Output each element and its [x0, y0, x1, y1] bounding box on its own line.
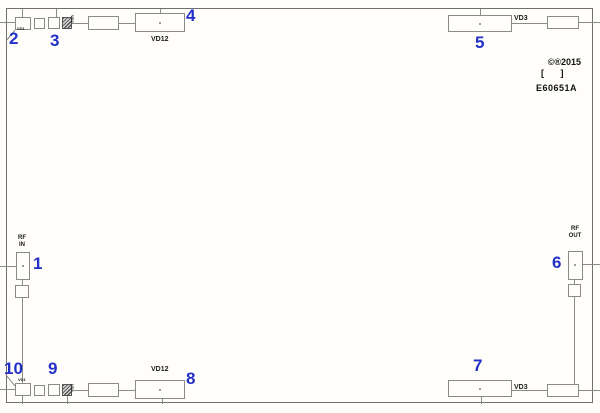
trace-top-left-1: [72, 23, 88, 24]
pad-small-a-bottom: [34, 385, 45, 396]
rf-out-line1: RF: [562, 226, 588, 233]
rf-out-line2: OUT: [562, 233, 588, 240]
component-rect-bottom-left: [88, 383, 119, 397]
component-rect-bottom-right: [547, 384, 579, 397]
rf-in-label: RF IN: [13, 235, 31, 249]
pin-number-10: 10: [4, 360, 23, 377]
pad-9-component: [48, 384, 60, 396]
pin-number-2: 2: [9, 30, 18, 47]
board-outline: [6, 8, 593, 403]
trace-stub-pad2: [22, 9, 23, 17]
rf-in-line2: IN: [13, 242, 31, 249]
pin-number-4: 4: [186, 7, 195, 24]
designator-vd3-top: VD3: [514, 15, 528, 23]
edge-trace-rf-in: [0, 266, 16, 267]
component-rect-top-left: [88, 16, 119, 30]
pcb-assembly-drawing: VD1 2 3 VD2 VD12 4 5 VD3 ©®2015 [ ] E606…: [0, 0, 600, 413]
edge-trace-rf-out: [583, 264, 600, 265]
pad-3-component: [48, 17, 60, 29]
via-dot-pad1: [22, 265, 24, 267]
pin-number-1: 1: [33, 255, 42, 272]
edge-trace-top-left: [0, 22, 16, 23]
pad-small-a-top: [34, 18, 45, 29]
pad-10-component: [15, 383, 31, 396]
via-dot-pad7: [479, 388, 481, 390]
via-dot-pad8: [159, 389, 161, 391]
trace-top-left-2: [119, 23, 135, 24]
pin-number-5: 5: [475, 34, 484, 51]
edge-trace-bottom-left: [0, 389, 15, 390]
pad-below-1: [15, 285, 29, 298]
designator-vd1-bottom: VD1: [18, 377, 26, 382]
component-rect-top-right: [547, 16, 579, 29]
trace-bottom-left-2: [119, 390, 135, 391]
trace-stub-pad4: [160, 9, 161, 13]
edge-trace-bottom-right: [579, 390, 600, 391]
trace-stub-pad10: [22, 396, 23, 404]
trace-stub-pad9: [67, 396, 68, 404]
designator-vd12-top: VD12: [151, 36, 169, 44]
trace-bottom-left-1: [72, 390, 88, 391]
trace-stub-pad3: [56, 9, 57, 17]
trace-top-right-1: [512, 23, 547, 24]
trace-stub-pad5: [480, 9, 481, 15]
trace-stub-pad8: [162, 399, 163, 404]
pin-number-7: 7: [473, 357, 482, 374]
pad-below-6: [568, 284, 581, 297]
rf-out-label: RF OUT: [562, 226, 588, 240]
pin-number-8: 8: [186, 370, 195, 387]
pin-number-3: 3: [50, 32, 59, 49]
via-dot-pad4: [159, 22, 161, 24]
edge-trace-top-right: [579, 22, 600, 23]
copyright-text: ©®2015: [531, 57, 581, 67]
rf-in-line1: RF: [13, 235, 31, 242]
trace-bottom-right-1: [512, 390, 547, 391]
via-dot-pad5: [479, 23, 481, 25]
pin-number-6: 6: [552, 254, 561, 271]
designator-vd12-bottom: VD12: [151, 366, 169, 374]
trace-stub-pad7: [481, 397, 482, 404]
via-dot-pad6: [574, 264, 576, 266]
revision-brackets: [ ]: [521, 68, 596, 78]
designator-vd2-bottom: VD2: [70, 384, 74, 400]
part-number: E60651A: [531, 83, 596, 93]
pin-number-9: 9: [48, 360, 57, 377]
